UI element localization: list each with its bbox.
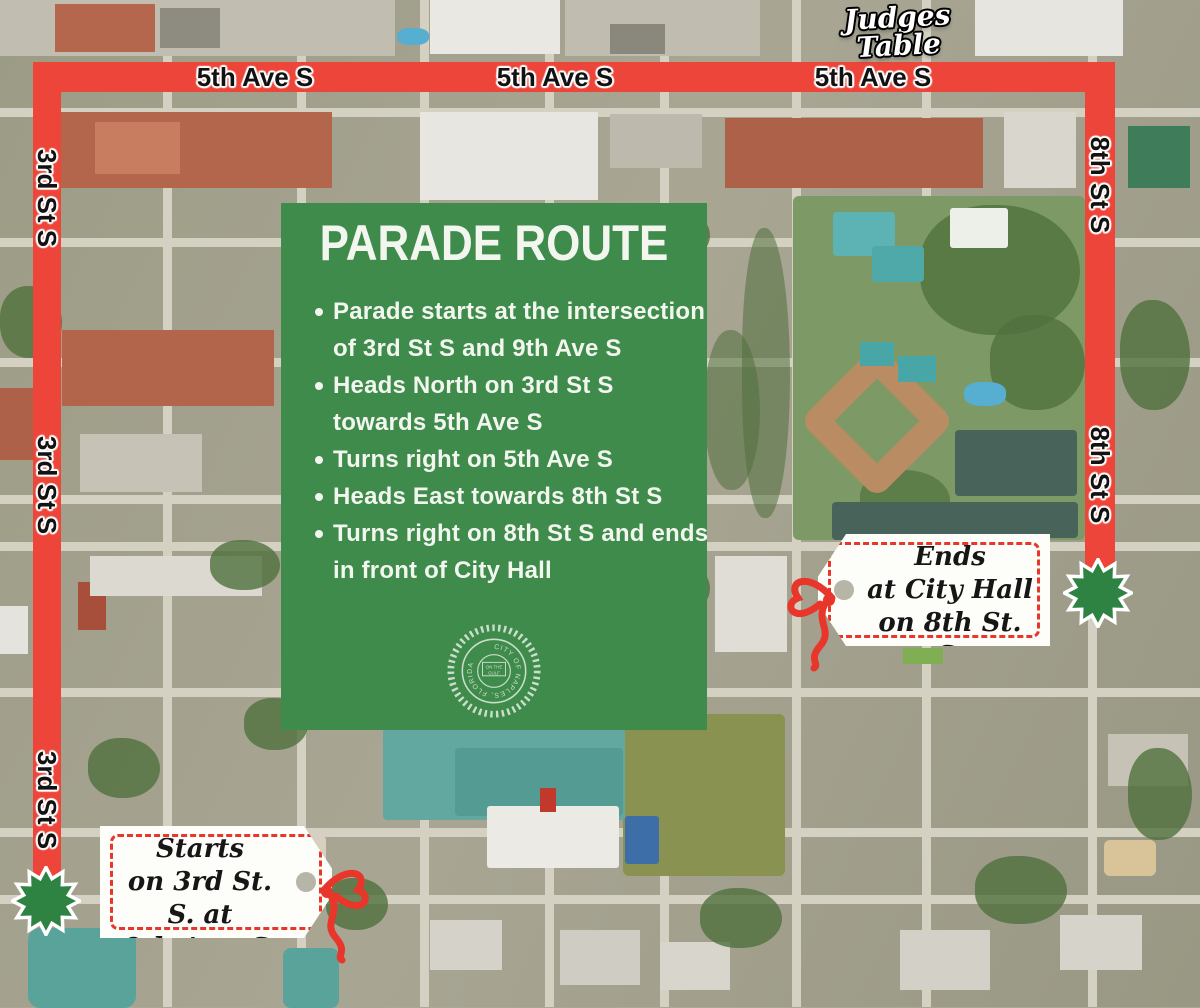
map-building [62, 330, 274, 406]
map-basketball-court [625, 816, 659, 864]
ribbon-bow-icon [312, 852, 376, 964]
parade-route-poster: 5th Ave S 5th Ave S 5th Ave S 3rd St S 3… [0, 0, 1200, 1007]
street-label-8th-st: 8th St S [1086, 410, 1114, 540]
map-building [872, 246, 924, 282]
street-label-5th-ave: 5th Ave S [803, 63, 943, 91]
map-building [430, 920, 502, 970]
street-label-8th-st: 8th St S [1086, 120, 1114, 250]
judges-table-label: Judges Table [832, 1, 965, 64]
parade-ends-text: Parade Ends at City Hall on 8th St. S. [862, 542, 1038, 638]
map-building [0, 606, 28, 654]
city-of-naples-seal-icon: CITY OF NAPLES, FLORIDA ON THE GULF [446, 623, 542, 719]
map-building [1128, 126, 1190, 188]
street-label-5th-ave: 5th Ave S [185, 63, 325, 91]
parade-ends-line2: at City Hall [862, 574, 1038, 607]
map-building [975, 0, 1123, 56]
street-label-3rd-st: 3rd St S [33, 133, 61, 263]
parade-starts-tag: Parade Starts on 3rd St. S. at 9th Ave. … [100, 826, 332, 938]
route-description-list: Parade starts at the intersection of 3rd… [281, 293, 707, 589]
parade-route-panel: PARADE ROUTE Parade starts at the inters… [281, 203, 707, 730]
map-building [860, 342, 894, 366]
parade-starts-line2: on 3rd St. S. at [112, 866, 288, 932]
map-court [903, 648, 943, 664]
map-parking-lot [80, 434, 202, 492]
map-building [560, 930, 640, 985]
map-sand-lot [1104, 840, 1156, 876]
map-building [660, 942, 730, 990]
panel-title: PARADE ROUTE [307, 217, 682, 269]
map-building [430, 0, 560, 54]
ribbon-bow-icon [780, 560, 844, 672]
route-step: Turns right on 5th Ave S [317, 441, 711, 478]
map-building [420, 112, 598, 200]
map-building [610, 24, 665, 54]
map-trees [210, 540, 280, 590]
parade-ends-tag: Parade Ends at City Hall on 8th St. S. [818, 534, 1050, 646]
map-building [1004, 112, 1076, 188]
route-step: Turns right on 8th St S and ends in fron… [317, 515, 711, 589]
map-trees [1128, 748, 1192, 840]
map-trees [88, 738, 160, 798]
map-building [898, 356, 936, 382]
map-trees [700, 888, 782, 948]
map-building [28, 928, 136, 1008]
map-building [900, 930, 990, 990]
map-building [1060, 915, 1142, 970]
map-pool [397, 28, 429, 45]
map-building [725, 118, 983, 188]
parade-start-star-icon [11, 866, 81, 936]
map-building [610, 114, 702, 168]
map-trees [1120, 300, 1190, 410]
map-building [950, 208, 1008, 248]
map-tennis-courts [930, 502, 1078, 538]
map-building [95, 122, 180, 174]
street-label-5th-ave: 5th Ave S [485, 63, 625, 91]
parade-starts-text: Parade Starts on 3rd St. S. at 9th Ave. … [112, 834, 288, 930]
route-step: Parade starts at the intersection of 3rd… [317, 293, 711, 367]
street-label-3rd-st: 3rd St S [33, 735, 61, 865]
map-pool [964, 382, 1006, 406]
map-building [160, 8, 220, 48]
seal-center-bottom: GULF [488, 670, 500, 675]
route-step: Heads North on 3rd St S towards 5th Ave … [317, 367, 711, 441]
map-building [487, 806, 619, 868]
map-building [55, 4, 155, 52]
parade-end-star-icon [1063, 558, 1133, 628]
seal-center-top: ON THE [486, 665, 503, 670]
street-label-3rd-st: 3rd St S [33, 420, 61, 550]
map-trees [705, 330, 760, 490]
map-building [540, 788, 556, 812]
map-trees [975, 856, 1067, 924]
route-step: Heads East towards 8th St S [317, 478, 711, 515]
map-tennis-courts [955, 430, 1077, 496]
map-building [715, 556, 787, 652]
